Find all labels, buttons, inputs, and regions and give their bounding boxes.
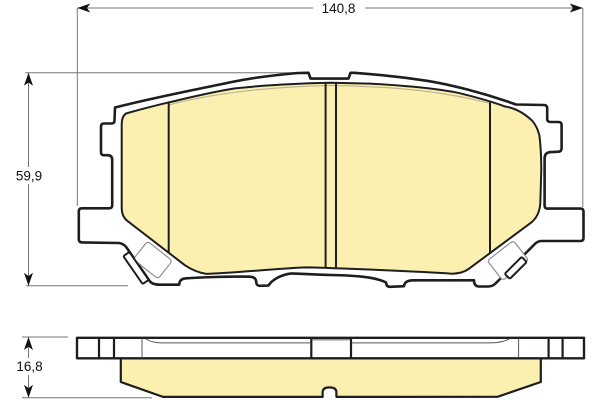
svg-text:140,8: 140,8 (322, 1, 356, 16)
svg-text:16,8: 16,8 (16, 359, 42, 374)
svg-text:59,9: 59,9 (16, 169, 42, 184)
